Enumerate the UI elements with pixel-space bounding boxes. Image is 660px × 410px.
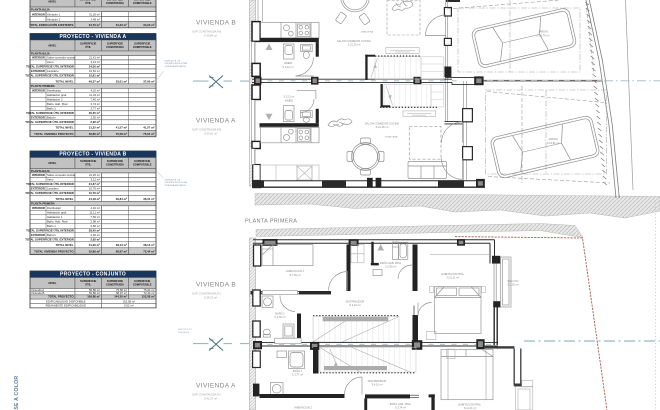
svg-text:38,13 m²: 38,13 m² <box>116 243 127 247</box>
svg-text:4,10 m²: 4,10 m² <box>91 89 101 93</box>
svg-text:SUPERFICIE EN ZONA: SUPERFICIE EN ZONA <box>165 181 188 184</box>
svg-text:JARDIN: JARDIN <box>538 30 547 34</box>
svg-text:S.3,74 m²: S.3,74 m² <box>395 405 406 409</box>
svg-text:SUPERFICIE EN ZONA: SUPERFICIE EN ZONA <box>165 62 188 65</box>
svg-text:CONSTRUIDA: CONSTRUIDA <box>106 163 124 167</box>
svg-text:2,92 m²: 2,92 m² <box>91 116 101 120</box>
svg-text:CONSTRUIDA: CONSTRUIDA <box>106 45 124 49</box>
svg-text:INTERIOR: INTERIOR <box>32 173 45 177</box>
svg-text:Baño. Hab. Ppal: Baño. Hab. Ppal <box>47 220 68 224</box>
svg-text:3,77 m²: 3,77 m² <box>91 107 101 111</box>
svg-text:2,92 m²: 2,92 m² <box>90 238 100 242</box>
svg-text:3,74 m²: 3,74 m² <box>91 102 101 106</box>
svg-text:TOTAL SUPERFICIE ÚTIL EXTERIOR: TOTAL SUPERFICIE ÚTIL EXTERIOR <box>25 119 74 124</box>
svg-text:PLANTA BAJA: PLANTA BAJA <box>31 169 50 173</box>
svg-text:11,11 m²: 11,11 m² <box>89 211 100 215</box>
svg-text:56,86 m²: 56,86 m² <box>89 132 100 136</box>
svg-text:S.31,36 m²...: S.31,36 m²... <box>178 331 191 334</box>
svg-text:PROYECTO - VIVIENDA A: PROYECTO - VIVIENDA A <box>60 34 127 40</box>
svg-text:COMPUTABLE: COMPUTABLE <box>133 283 152 287</box>
svg-text:HABITACION 2: HABITACION 2 <box>294 405 312 409</box>
svg-text:75,58 m²: 75,58 m² <box>116 132 127 136</box>
svg-text:NIVEL: NIVEL <box>49 281 57 285</box>
svg-text:144,55 m²: 144,55 m² <box>114 295 127 299</box>
svg-text:Habitación 2: Habitación 2 <box>47 98 63 102</box>
svg-text:S.3,77 m²: S.3,77 m² <box>292 373 303 377</box>
svg-text:EDIFICA P.B. DE: EDIFICA P.B. DE <box>165 179 181 182</box>
svg-text:10,76 m²: 10,76 m² <box>89 187 100 191</box>
svg-text:Almacén 1: Almacén 1 <box>47 12 61 16</box>
svg-text:SALON-COMEDOR COCINA: SALON-COMEDOR COCINA <box>337 39 371 43</box>
svg-text:24,37 m²: 24,37 m² <box>89 182 100 186</box>
svg-text:TOTAL EDIFICACIÓN EXISTENTE: TOTAL EDIFICACIÓN EXISTENTE <box>29 22 73 27</box>
svg-text:Distribuidor: Distribuidor <box>47 206 61 210</box>
svg-text:S.33,91 m²: S.33,91 m² <box>204 132 217 136</box>
svg-text:S.19,79 m²: S.19,79 m² <box>537 34 550 38</box>
svg-text:44,18 m²: 44,18 m² <box>89 197 100 201</box>
svg-text:52,86 m²: 52,86 m² <box>89 250 100 254</box>
svg-text:PLANTA BAJA: PLANTA BAJA <box>31 51 50 55</box>
svg-text:INTERIOR: INTERIOR <box>32 89 45 93</box>
svg-text:VIVIENDA A: VIVIENDA A <box>196 118 236 125</box>
svg-text:HABITACION PPAL.: HABITACION PPAL. <box>458 402 482 406</box>
svg-text:EXTERIOR: EXTERIOR <box>31 69 45 73</box>
svg-text:TOTAL PROYECTO: TOTAL PROYECTO <box>48 295 74 299</box>
svg-text:SUP. CONSTRUIDA P.B.: SUP. CONSTRUIDA P.B. <box>192 30 222 34</box>
svg-text:2,92 m²: 2,92 m² <box>91 233 101 237</box>
svg-text:7,40 m²: 7,40 m² <box>91 98 101 102</box>
svg-text:SUPERFICIE: SUPERFICIE <box>134 42 150 46</box>
svg-text:10,76 m²: 10,76 m² <box>89 191 100 195</box>
svg-text:S.11,11 m²: S.11,11 m² <box>447 276 459 280</box>
svg-text:28,45 m²: 28,45 m² <box>89 229 100 233</box>
svg-text:INTERIOR: INTERIOR <box>32 12 45 16</box>
svg-text:24,56 m²: 24,56 m² <box>89 65 100 69</box>
svg-text:4,10 m²: 4,10 m² <box>91 206 101 210</box>
svg-text:TOTAL VIVIENDA PROYECTO: TOTAL VIVIENDA PROYECTO <box>34 132 74 136</box>
svg-text:S.4,10 m²: S.4,10 m² <box>349 303 360 307</box>
svg-text:SUPERFICIE: SUPERFICIE <box>134 279 150 283</box>
svg-text:2,66 m²: 2,66 m² <box>91 224 101 228</box>
svg-text:Habitación ppal: Habitación ppal <box>47 93 67 97</box>
svg-text:EDIFICA P.B. DE: EDIFICA P.B. DE <box>165 60 181 63</box>
svg-text:SUPERFICIE: SUPERFICIE <box>80 159 96 163</box>
svg-text:EXTERIOR: EXTERIOR <box>31 116 45 120</box>
svg-text:TOTAL SUPERFICIE ÚTIL INTERIOR: TOTAL SUPERFICIE ÚTIL INTERIOR <box>26 228 74 233</box>
svg-text:TOTAL NIVEL: TOTAL NIVEL <box>55 126 73 130</box>
svg-text:HABITACION 1: HABITACION 1 <box>286 269 304 273</box>
svg-text:ZONA CENA: ZONA CENA <box>361 30 374 33</box>
svg-text:Baño 1: Baño 1 <box>47 224 56 228</box>
svg-text:SUP. CONSTRUIDA P.1: SUP. CONSTRUIDA P.1 <box>192 292 221 296</box>
svg-text:S.2,66 m²: S.2,66 m² <box>274 315 285 319</box>
svg-text:PLANTA BAJA: PLANTA BAJA <box>31 7 50 11</box>
svg-text:46,37 m²: 46,37 m² <box>89 79 100 83</box>
svg-text:38,13 m²: 38,13 m² <box>143 243 154 247</box>
svg-text:ZONA CENA: ZONA CENA <box>385 135 398 138</box>
svg-text:10,81 m²: 10,81 m² <box>89 69 100 73</box>
svg-text:SUPERFICIE: SUPERFICIE <box>134 159 150 163</box>
svg-text:TOTAL NIVEL: TOTAL NIVEL <box>55 79 73 83</box>
svg-text:JARDIN: JARDIN <box>548 137 557 141</box>
svg-text:VIVIENDA B: VIVIENDA B <box>196 282 236 289</box>
svg-text:Lavadero: Lavadero <box>47 187 59 191</box>
svg-text:S.30,84 m²: S.30,84 m² <box>204 34 217 38</box>
svg-text:S.38,13 m²: S.38,13 m² <box>204 296 217 300</box>
svg-text:PROYECTO - CONJUNTO: PROYECTO - CONJUNTO <box>60 272 126 278</box>
svg-text:Salón-comedor-cocina: Salón-comedor-cocina <box>47 56 75 60</box>
svg-text:Baño. Hab. Ppal: Baño. Hab. Ppal <box>47 102 68 106</box>
svg-text:ASEO: ASEO <box>284 61 293 65</box>
svg-text:REMANENTE EDIFICABILIDAD: REMANENTE EDIFICABILIDAD <box>46 304 86 308</box>
svg-text:INTERIOR: INTERIOR <box>32 56 45 60</box>
svg-text:TOTAL SUPERFICIE ÚTIL INTERIOR: TOTAL SUPERFICIE ÚTIL INTERIOR <box>26 64 74 69</box>
svg-text:33,01 m²: 33,01 m² <box>116 79 127 83</box>
svg-text:S.11,34 m²: S.11,34 m² <box>464 406 477 410</box>
svg-text:NIVEL: NIVEL <box>49 44 57 48</box>
svg-text:TOTAL NIVEL: TOTAL NIVEL <box>55 243 73 247</box>
svg-text:SUPERFICIE: SUPERFICIE <box>107 159 123 163</box>
svg-text:S.21,48 m²: S.21,48 m² <box>376 125 389 129</box>
svg-text:CONSTRUIDA: CONSTRUIDA <box>106 1 124 5</box>
svg-text:Habitación ppal: Habitación ppal <box>47 211 67 215</box>
svg-text:VIVIENDA B: VIVIENDA B <box>196 20 236 27</box>
svg-text:30,35 m²: 30,35 m² <box>89 111 100 115</box>
svg-text:75,04 m²: 75,04 m² <box>143 132 154 136</box>
svg-text:SUP. CONSTRUIDA P.1: SUP. CONSTRUIDA P.1 <box>192 393 221 397</box>
svg-text:3,12 m²: 3,12 m² <box>91 178 101 182</box>
svg-text:Salón-comedor-cocina: Salón-comedor-cocina <box>47 173 75 177</box>
svg-text:2,98 m²: 2,98 m² <box>91 220 101 224</box>
svg-text:TOTAL SUPERFICIE ÚTIL INTERIOR: TOTAL SUPERFICIE ÚTIL INTERIOR <box>26 110 74 115</box>
svg-text:PLANTA PRIMERA: PLANTA PRIMERA <box>31 202 55 206</box>
svg-text:3,13 m²: 3,13 m² <box>91 60 101 64</box>
svg-text:PLANTA PRIMERA: PLANTA PRIMERA <box>31 84 55 88</box>
svg-text:VIVIENDA ADELANTE...: VIVIENDA ADELANTE... <box>165 65 188 68</box>
svg-text:SUPERFICIE: SUPERFICIE <box>107 279 123 283</box>
svg-text:34,79 m²: 34,79 m² <box>89 23 100 27</box>
svg-text:Lavadero: Lavadero <box>47 69 59 73</box>
svg-text:Almacén 2: Almacén 2 <box>47 17 61 21</box>
svg-text:Distribuidor: Distribuidor <box>47 89 61 93</box>
svg-text:HABITACION PPAL.: HABITACION PPAL. <box>441 272 465 276</box>
svg-text:Balcón: Balcón <box>47 116 56 120</box>
svg-text:TOTAL SUPERFICIE ÚTIL EXTERIOR: TOTAL SUPERFICIE ÚTIL EXTERIOR <box>25 237 74 242</box>
svg-text:TOTAL SUPERFICIE ÚTIL EXTERIOR: TOTAL SUPERFICIE ÚTIL EXTERIOR <box>25 190 74 195</box>
svg-text:TOTAL NIVEL: TOTAL NIVEL <box>55 197 73 201</box>
svg-text:31,26 m²: 31,26 m² <box>89 12 100 16</box>
svg-text:SALON-COMEDOR-COCINA: SALON-COMEDOR-COCINA <box>365 121 399 125</box>
svg-text:Vivienda B: Vivienda B <box>31 291 44 295</box>
svg-text:37,90 m²: 37,90 m² <box>143 79 154 83</box>
svg-text:Balcón: Balcón <box>47 233 56 237</box>
svg-text:DISTRIBUIDOR: DISTRIBUIDOR <box>346 299 365 303</box>
svg-text:VIVIENDA A: VIVIENDA A <box>196 383 236 390</box>
svg-text:68,97 m²: 68,97 m² <box>116 250 127 254</box>
svg-text:34,23 m²: 34,23 m² <box>143 23 154 27</box>
svg-text:S.41,57 m²: S.41,57 m² <box>204 397 217 401</box>
svg-text:PLANTA PRIMERA: PLANTA PRIMERA <box>245 219 297 225</box>
svg-text:S.2,98 m²: S.2,98 m² <box>385 265 396 269</box>
svg-text:SUPERFICIE: SUPERFICIE <box>107 42 123 46</box>
svg-text:30,84 m²: 30,84 m² <box>116 197 127 201</box>
svg-text:31,25 m²: 31,25 m² <box>89 126 100 130</box>
svg-text:BALCON: BALCON <box>508 279 519 283</box>
svg-text:41,57 m²: 41,57 m² <box>116 126 127 130</box>
svg-text:S.3,12 m²: S.3,12 m² <box>282 65 293 69</box>
svg-text:COMPUTABLE: COMPUTABLE <box>133 1 152 5</box>
svg-text:41,57 m²: 41,57 m² <box>143 126 154 130</box>
svg-text:2,92 m²: 2,92 m² <box>90 120 100 124</box>
svg-text:NIVEL: NIVEL <box>49 161 57 165</box>
svg-text:S.21,25 m²: S.21,25 m² <box>348 43 361 47</box>
svg-text:EXTERIOR: EXTERIOR <box>31 233 45 237</box>
svg-text:Aseo: Aseo <box>47 178 54 182</box>
svg-text:3,48 m²: 3,48 m² <box>91 17 101 21</box>
svg-text:11,34 m²: 11,34 m² <box>89 93 100 97</box>
svg-text:Habitación 1: Habitación 1 <box>47 215 63 219</box>
svg-text:S.2,92 m²: S.2,92 m² <box>507 282 518 286</box>
svg-text:Baño 1: Baño 1 <box>47 107 56 111</box>
svg-text:COMPUTABLE: COMPUTABLE <box>133 45 152 49</box>
svg-text:21,25 m²: 21,25 m² <box>89 173 100 177</box>
svg-text:S.4,10 m²: S.4,10 m² <box>371 383 382 387</box>
svg-text:SUP. UTIL P.1: SUP. UTIL P.1 <box>178 329 192 331</box>
svg-text:ASEO: ASEO <box>285 99 294 103</box>
svg-text:PROYECTO - VIVIENDA B: PROYECTO - VIVIENDA B <box>59 152 126 158</box>
svg-text:S.7,59 m²: S.7,59 m² <box>289 273 300 277</box>
svg-text:COMPUTABLE: COMPUTABLE <box>133 163 152 167</box>
svg-text:VIVIENDA ADELANTE...: VIVIENDA ADELANTE... <box>165 184 188 187</box>
svg-text:0,52 m²: 0,52 m² <box>124 304 134 308</box>
svg-text:TOTAL SUPERFICIE ÚTIL INTERIOR: TOTAL SUPERFICIE ÚTIL INTERIOR <box>26 181 74 186</box>
svg-text:S.19,81 m²: S.19,81 m² <box>547 141 560 145</box>
svg-text:NIVEL: NIVEL <box>49 0 57 4</box>
svg-text:Aseo: Aseo <box>47 60 54 64</box>
svg-text:TOTAL VIVIENDA PROYECTO: TOTAL VIVIENDA PROYECTO <box>34 250 74 254</box>
svg-text:SUPERFICIE: SUPERFICIE <box>80 279 96 283</box>
svg-text:INTERIOR: INTERIOR <box>32 206 45 210</box>
svg-text:SUP. CONSTRUIDA P.B.: SUP. CONSTRUIDA P.B. <box>192 128 222 132</box>
svg-text:72,44 m²: 72,44 m² <box>143 250 154 254</box>
svg-text:31,36 m²: 31,36 m² <box>89 243 100 247</box>
svg-text:36,31 m²: 36,31 m² <box>143 197 154 201</box>
svg-text:EXTERIOR: EXTERIOR <box>31 187 45 191</box>
svg-text:34,23 m²: 34,23 m² <box>116 23 127 27</box>
svg-text:109,86 m²: 109,86 m² <box>87 295 100 299</box>
svg-text:CONSTRUIDA: CONSTRUIDA <box>106 283 124 287</box>
svg-text:SUPERFICIE: SUPERFICIE <box>80 42 96 46</box>
svg-text:7,59 m²: 7,59 m² <box>91 215 101 219</box>
svg-text:DEBE IMPRIMIRSE A COLOR: DEBE IMPRIMIRSE A COLOR <box>14 376 20 410</box>
svg-text:DISTRIBUIDOR: DISTRIBUIDOR <box>368 379 387 383</box>
svg-text:TOTAL SUPERFICIE ÚTIL EXTERIOR: TOTAL SUPERFICIE ÚTIL EXTERIOR <box>25 73 74 78</box>
svg-text:21,41 m²: 21,41 m² <box>89 56 100 60</box>
svg-text:10,81 m²: 10,81 m² <box>89 74 100 78</box>
svg-text:152,08 m²: 152,08 m² <box>142 295 155 299</box>
